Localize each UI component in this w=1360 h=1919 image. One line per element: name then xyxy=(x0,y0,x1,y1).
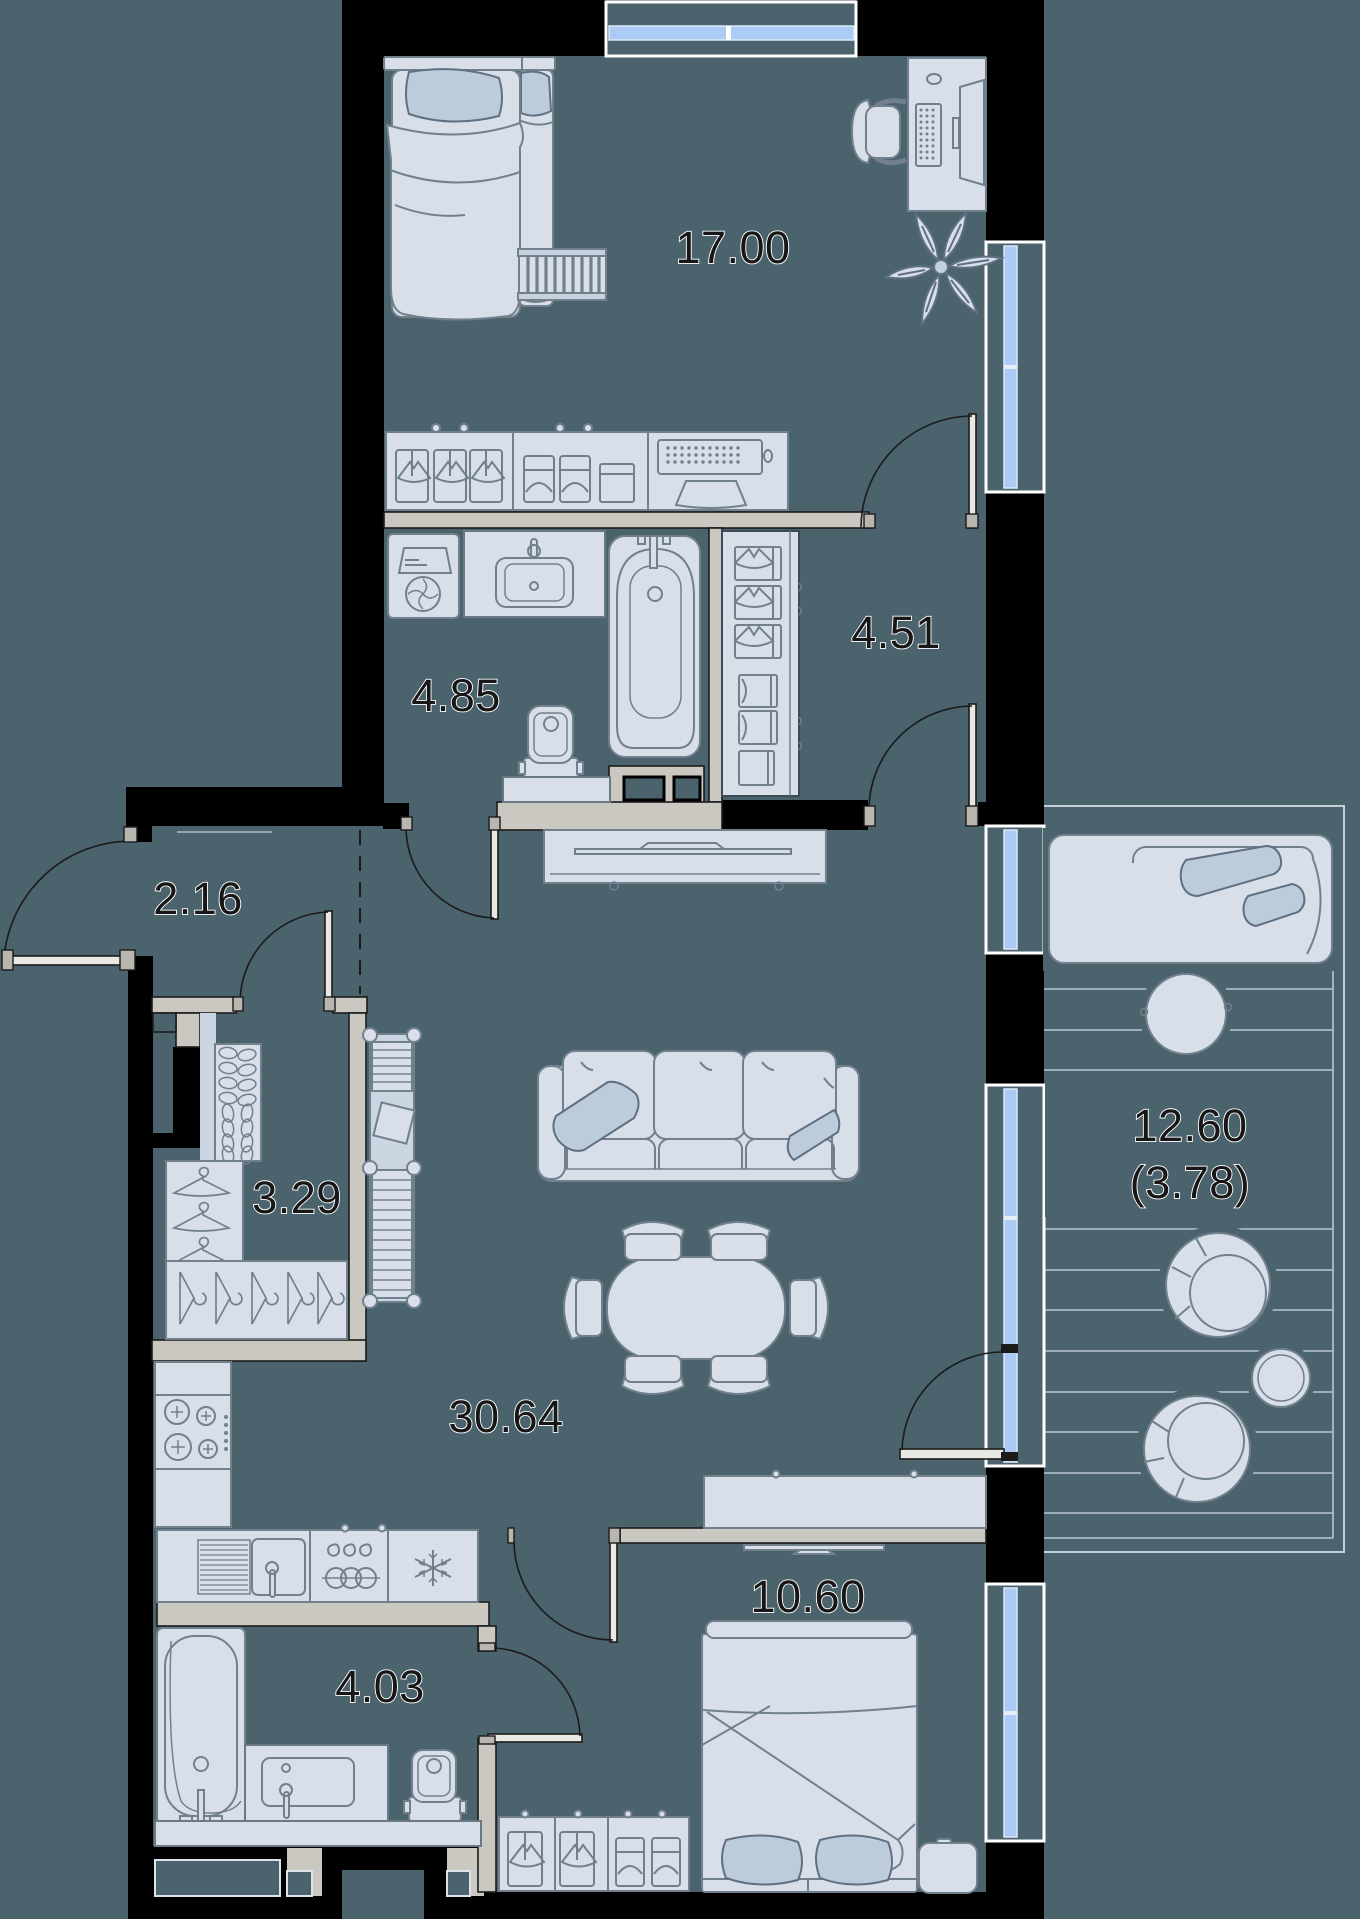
svg-text:4.85: 4.85 xyxy=(411,670,501,721)
svg-text:30.64: 30.64 xyxy=(448,1391,563,1442)
svg-text:2.16: 2.16 xyxy=(153,873,243,924)
svg-text:12.60: 12.60 xyxy=(1132,1100,1247,1151)
svg-text:17.00: 17.00 xyxy=(675,222,790,273)
svg-text:(3.78): (3.78) xyxy=(1130,1157,1251,1208)
svg-text:4.03: 4.03 xyxy=(335,1661,425,1712)
svg-text:4.51: 4.51 xyxy=(851,607,941,658)
svg-text:10.60: 10.60 xyxy=(750,1571,865,1622)
svg-text:3.29: 3.29 xyxy=(252,1172,342,1223)
